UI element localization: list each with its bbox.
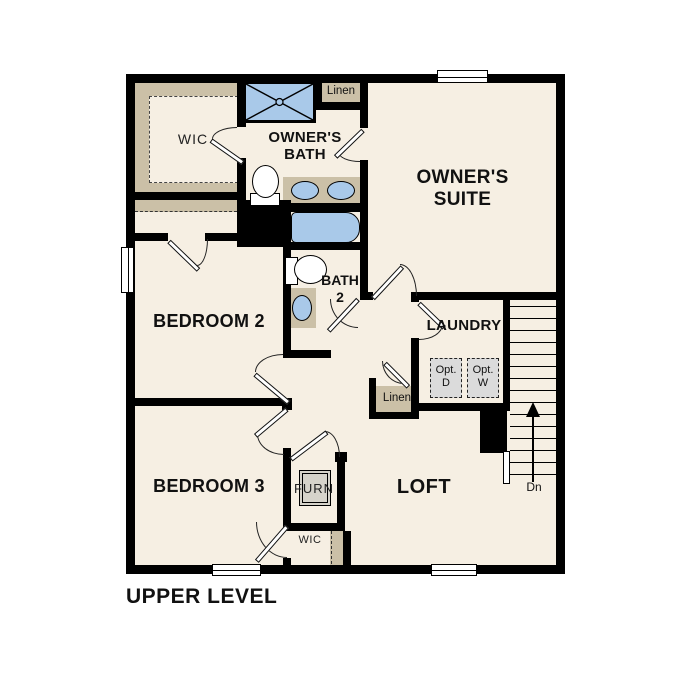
room-label-bedroom3: BEDROOM 3 bbox=[133, 476, 285, 497]
optional-washer-label-2: W bbox=[468, 377, 498, 390]
floor-plan-upper-level: Opt. D Opt. W WIC OWNER'S BATH Linen OWN… bbox=[0, 0, 687, 687]
wall-segment bbox=[556, 74, 565, 574]
sink-icon bbox=[292, 295, 312, 321]
wall-segment bbox=[283, 242, 368, 250]
room-label-wic-lower: WIC bbox=[289, 534, 331, 546]
wall-segment bbox=[337, 452, 345, 531]
wall-segment bbox=[283, 203, 368, 212]
optional-dryer-box: Opt. D bbox=[430, 358, 462, 398]
wall-segment bbox=[480, 411, 507, 453]
room-label-bath2-line2: 2 bbox=[317, 289, 363, 306]
room-label-owners-suite: OWNER'S SUITE bbox=[410, 167, 515, 211]
room-label-bedroom2: BEDROOM 2 bbox=[133, 311, 285, 332]
wall-segment bbox=[237, 200, 283, 247]
closet-label-linen-upper: Linen bbox=[322, 85, 360, 97]
optional-washer-label-1: Opt. bbox=[468, 364, 498, 377]
optional-dryer-label-1: Opt. bbox=[431, 364, 461, 377]
stair-direction-arrow bbox=[532, 416, 534, 482]
wic-lower-dashed-line bbox=[331, 531, 332, 564]
wall-segment bbox=[126, 398, 291, 406]
room-label-wic-upper: WIC bbox=[163, 131, 223, 147]
sink-icon bbox=[327, 181, 355, 200]
wall-segment bbox=[126, 74, 565, 83]
bathtub-icon bbox=[291, 212, 360, 243]
optional-washer-box: Opt. W bbox=[467, 358, 499, 398]
shower-icon bbox=[243, 81, 316, 123]
optional-dryer-label-2: D bbox=[431, 377, 461, 390]
wall-segment bbox=[283, 558, 291, 565]
window-symbol bbox=[121, 247, 134, 293]
room-label-owners-bath: OWNER'S BATH bbox=[259, 129, 351, 163]
sink-icon bbox=[291, 181, 319, 200]
wall-segment bbox=[126, 565, 565, 574]
toilet-icon bbox=[252, 165, 279, 198]
closet-rod-dashed-line bbox=[135, 211, 237, 212]
page-title: UPPER LEVEL bbox=[126, 585, 346, 609]
wall-segment bbox=[360, 74, 368, 128]
wall-segment bbox=[419, 403, 507, 411]
stair-railing bbox=[503, 451, 510, 484]
room-label-laundry: LAUNDRY bbox=[425, 317, 503, 334]
wall-segment bbox=[369, 412, 419, 419]
room-label-loft: LOFT bbox=[393, 476, 455, 499]
room-label-bath2-line1: BATH bbox=[317, 272, 363, 289]
stair-direction-label: Dn bbox=[523, 480, 545, 494]
stair-arrow-head-icon bbox=[526, 402, 540, 417]
wall-segment bbox=[343, 531, 351, 565]
room-label-furnace: FURN bbox=[290, 481, 338, 496]
wall-segment bbox=[283, 523, 345, 531]
window-symbol bbox=[437, 70, 488, 83]
wall-segment bbox=[283, 350, 331, 358]
closet-label-linen-hall: Linen bbox=[376, 392, 418, 404]
window-symbol bbox=[212, 564, 261, 576]
wall-segment bbox=[135, 233, 168, 241]
window-symbol bbox=[431, 564, 477, 576]
wall-segment bbox=[135, 192, 246, 200]
wall-segment bbox=[503, 292, 510, 411]
room-label-bath2: BATH 2 bbox=[317, 272, 363, 306]
